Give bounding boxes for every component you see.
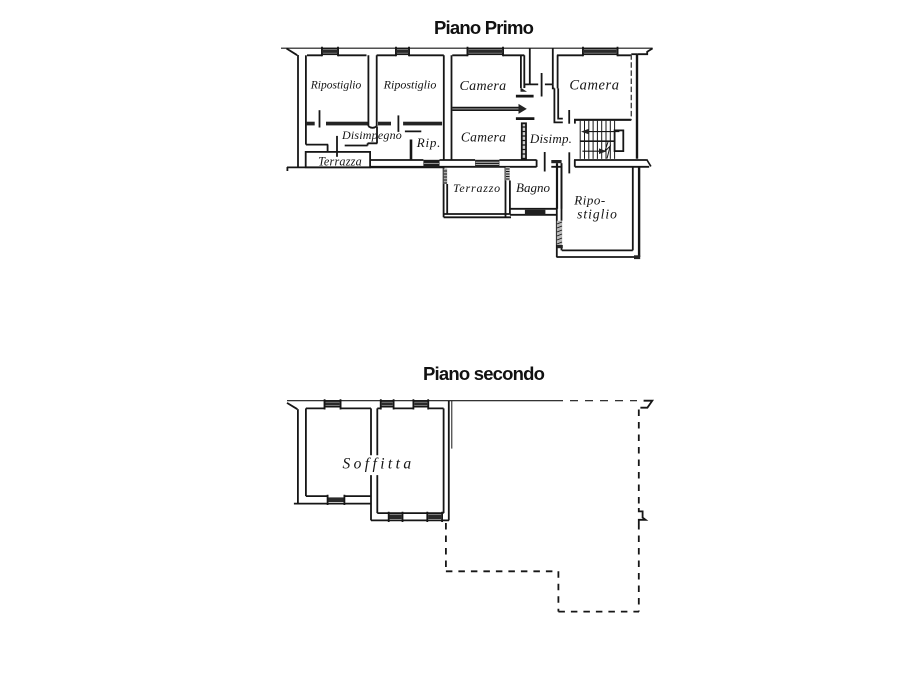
svg-text:Disimp.: Disimp. — [529, 131, 572, 146]
svg-text:Ripostiglio: Ripostiglio — [310, 80, 362, 92]
svg-text:Terrazzo: Terrazzo — [453, 181, 501, 195]
svg-text:Camera: Camera — [460, 79, 507, 94]
svg-text:Camera: Camera — [569, 78, 619, 94]
svg-text:Disimpegno: Disimpegno — [341, 128, 402, 142]
svg-text:Camera: Camera — [461, 130, 506, 145]
svg-text:Ripostiglio: Ripostiglio — [383, 78, 437, 92]
svg-text:Ripo-: Ripo- — [573, 193, 605, 208]
svg-text:Rip.: Rip. — [416, 135, 442, 150]
svg-text:Terrazza: Terrazza — [318, 155, 362, 169]
svg-text:Soffitta: Soffitta — [343, 456, 415, 473]
svg-text:Bagno: Bagno — [516, 180, 550, 195]
svg-text:stiglio: stiglio — [577, 207, 618, 222]
